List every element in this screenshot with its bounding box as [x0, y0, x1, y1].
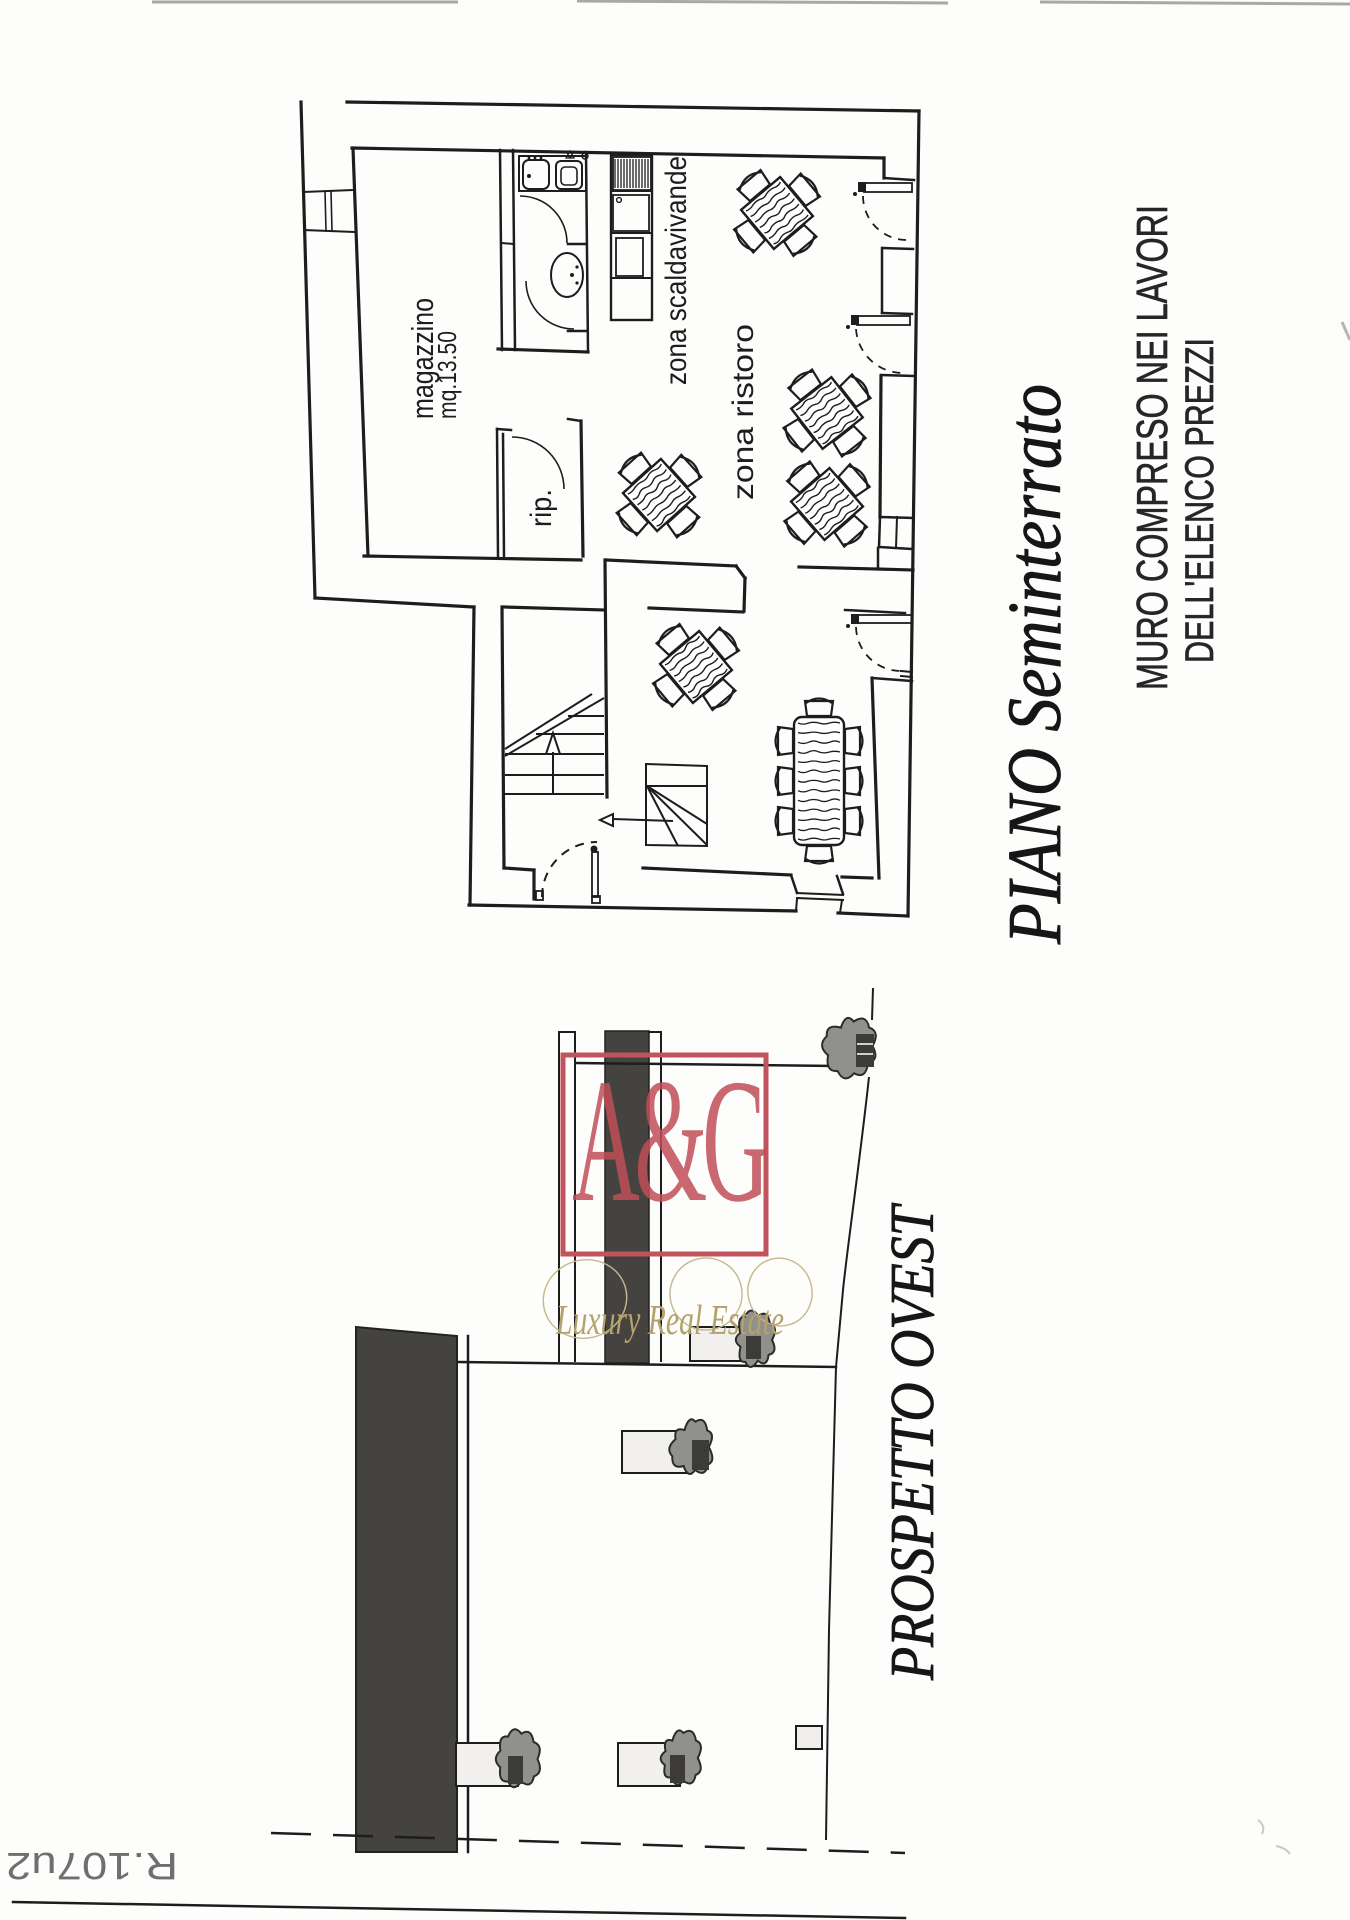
- svg-text:PROSPETTO OVEST: PROSPETTO OVEST: [879, 1202, 947, 1681]
- svg-text:A&G: A&G: [572, 1043, 767, 1239]
- svg-text:Luxury Real Estate: Luxury Real Estate: [555, 1298, 784, 1344]
- svg-text:zona scaldavivande: zona scaldavivande: [660, 156, 693, 385]
- svg-text:zona ristoro: zona ristoro: [727, 324, 760, 500]
- svg-text:R.107u2: R.107u2: [6, 1844, 178, 1886]
- svg-text:DELL'ELENCO PREZZI: DELL'ELENCO PREZZI: [1178, 338, 1222, 663]
- svg-text:MURO COMPRESO NEI LAVORI: MURO COMPRESO NEI LAVORI: [1128, 205, 1177, 690]
- svg-text:PIANO Seminterrato: PIANO Seminterrato: [993, 384, 1077, 945]
- svg-text:rip.: rip.: [525, 489, 558, 527]
- svg-text:mq.13.50: mq.13.50: [432, 331, 462, 419]
